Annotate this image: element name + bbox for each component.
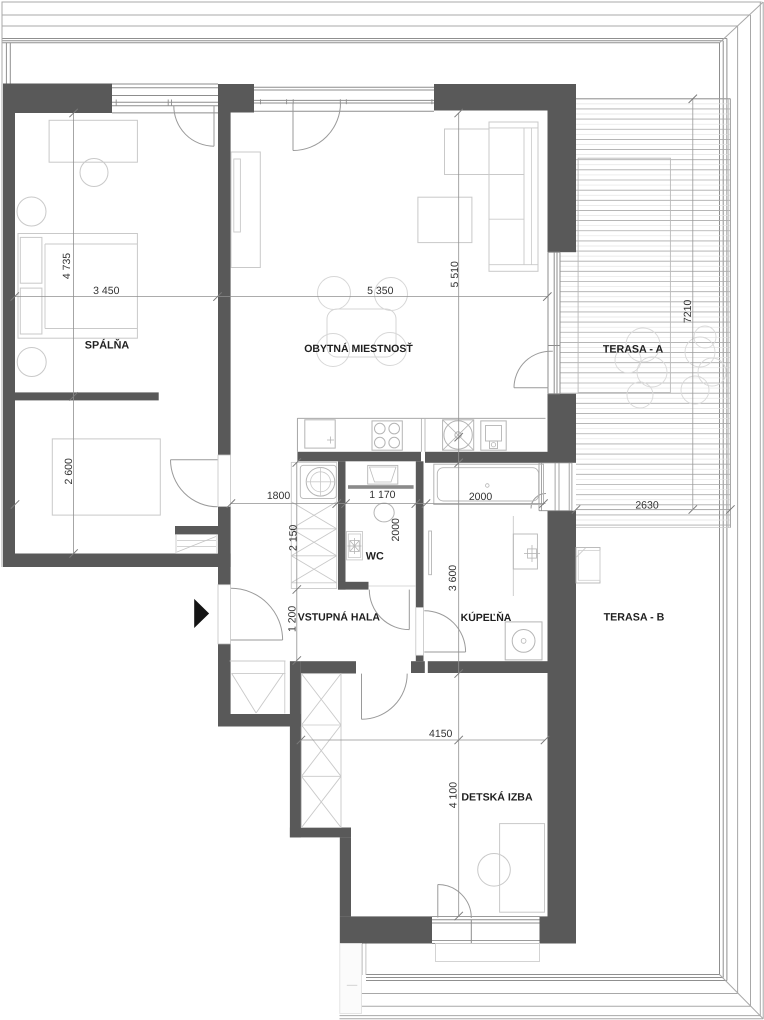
svg-text:4150: 4150 — [429, 728, 453, 740]
svg-text:2 600: 2 600 — [63, 458, 75, 484]
svg-text:5 350: 5 350 — [367, 285, 393, 297]
svg-text:KÚPEĽŇA: KÚPEĽŇA — [461, 611, 512, 624]
svg-text:3 450: 3 450 — [93, 285, 119, 297]
svg-text:3 600: 3 600 — [447, 565, 459, 591]
svg-text:OBYTNÁ MIESTNOSŤ: OBYTNÁ MIESTNOSŤ — [304, 342, 413, 355]
svg-text:1 200: 1 200 — [287, 606, 299, 632]
svg-text:2000: 2000 — [390, 518, 402, 542]
svg-text:1800: 1800 — [267, 490, 291, 502]
svg-text:4 735: 4 735 — [61, 253, 73, 279]
svg-text:DETSKÁ IZBA: DETSKÁ IZBA — [461, 791, 533, 804]
svg-text:5 510: 5 510 — [449, 261, 461, 287]
svg-text:7210: 7210 — [682, 300, 694, 324]
svg-text:TERASA - A: TERASA - A — [603, 343, 664, 355]
svg-text:1 170: 1 170 — [369, 489, 395, 501]
svg-text:VSTUPNÁ HALA: VSTUPNÁ HALA — [298, 610, 381, 623]
svg-text:4 100: 4 100 — [448, 782, 460, 808]
svg-text:2 150: 2 150 — [288, 525, 300, 551]
svg-text:SPÁLŇA: SPÁLŇA — [85, 339, 130, 352]
svg-text:2000: 2000 — [469, 491, 493, 503]
svg-text:TERASA - B: TERASA - B — [604, 612, 665, 624]
svg-text:2630: 2630 — [635, 500, 659, 512]
svg-text:WC: WC — [366, 551, 384, 563]
